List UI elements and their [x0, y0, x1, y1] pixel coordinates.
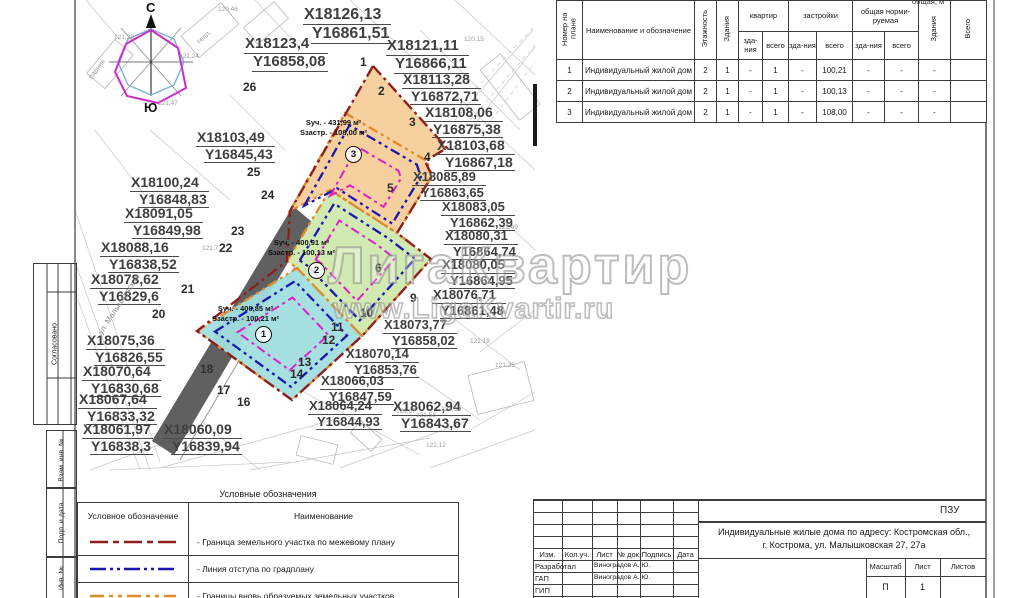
legend-col1-header: Условное обозначение [78, 503, 189, 529]
coordinate-label: X18091,05Y16849,98 [124, 206, 203, 239]
title-block-line [533, 584, 698, 585]
title-block-line [533, 512, 698, 513]
coordinate-label: X18103,49Y16845,43 [196, 130, 275, 163]
coordinate-label: X18088,16Y16838,52 [100, 240, 179, 273]
legend-name: - Границы вновь образуемых земельных уча… [189, 583, 458, 598]
sheet-header: Лист [905, 562, 940, 571]
legend-row: - Границы вновь образуемых земельных уча… [78, 582, 458, 598]
coordinate-label: X18075,36Y16826,55 [86, 333, 165, 366]
boundary-point-number: 3 [409, 115, 416, 129]
stamp-vzam-inv: Взам. инв. № [46, 430, 77, 489]
boundary-point-number: 22 [219, 241, 232, 255]
boundary-point-number: 18 [200, 362, 213, 376]
legend-name: - Линия отступа по градплану [189, 556, 458, 582]
boundary-point-number: 16 [237, 395, 250, 409]
title-block-person: Виноградов А. Ю. [594, 562, 673, 569]
summary-table-row: 1Индивидуальный жилой дом21-1-100,21--- [557, 60, 987, 81]
boundary-point-number: 9 [410, 291, 417, 305]
title-block-role: Разработал [535, 562, 592, 571]
legend-symbol [78, 556, 189, 582]
title-block-header-cell: № док. [617, 550, 640, 559]
summary-table: Номер на планеНаименование и обозначение… [556, 0, 987, 123]
boundary-point-number: 11 [331, 320, 344, 334]
elevation-mark: 121,7 [202, 245, 218, 252]
coordinate-label: X18080,05Y16864,95 [441, 258, 515, 289]
legend-row: - Граница земельного участка по межевому… [78, 529, 458, 555]
elevation-mark: 121,24 [179, 53, 199, 60]
boundary-point-number: 25 [247, 165, 260, 179]
title-block-header-cell: Дата [673, 550, 698, 559]
title-block-line [533, 536, 698, 537]
stamp-inv: Инв. № [46, 556, 77, 598]
boundary-point-number: 6 [375, 261, 382, 275]
boundary-point-number: 14 [290, 367, 303, 381]
boundary-point-number: 5 [387, 181, 394, 195]
elevation-mark: 120,46 [218, 6, 238, 13]
legend-title: Условные обозначения [77, 489, 459, 499]
coordinate-label: X18121,11Y16866,11 [386, 38, 469, 74]
boundary-point-number: 17 [217, 383, 230, 397]
coordinate-label: X18064,24Y16844,93 [308, 399, 382, 430]
coordinate-label: X18076,71Y16861,48 [432, 288, 506, 319]
title-block-line [698, 499, 699, 598]
boundary-point-number: 24 [261, 188, 274, 202]
coordinate-label: X18100,24Y16848,83 [130, 175, 209, 208]
elevation-mark: 120,15 [464, 36, 484, 43]
project-title-line2: г. Кострома, ул. Малышковская 27, 27а [706, 540, 982, 550]
title-block-line [533, 524, 698, 525]
legend-symbol [78, 529, 189, 555]
boundary-point-number: 21 [181, 282, 194, 296]
boundary-point-number: 10 [360, 306, 373, 320]
legend-symbol [78, 583, 189, 598]
scale-header: Масштаб [866, 562, 905, 571]
boundary-point-number: 1 [360, 55, 367, 69]
compass-south-label: Ю [144, 100, 157, 115]
title-block-header-cell: Подпись [640, 550, 673, 559]
sheets-header: Листов [940, 562, 986, 571]
legend-col2-header: Наименование [189, 503, 458, 529]
stamp-podp-data: Подп. и дата [46, 487, 77, 558]
coordinate-label: X18061,97Y16838,3 [82, 422, 153, 455]
elevation-mark: 122,49 [498, 224, 518, 231]
coordinate-label: X18103,68Y16867,18 [436, 138, 515, 171]
coordinate-label: X18113,28Y16872,71 [402, 72, 481, 105]
coordinate-label: X18123,4Y16858,08 [244, 36, 328, 72]
elevation-mark: 121,58 [416, 412, 436, 419]
legend-name: - Граница земельного участка по межевому… [189, 529, 458, 555]
legend-row: - Линия отступа по градплану [78, 555, 458, 582]
title-block-header-cell: Изм. [533, 550, 562, 559]
title-block-line [533, 499, 986, 501]
boundary-point-number: 12 [322, 333, 335, 347]
summary-table-row: 2Индивидуальный жилой дом21-1-100,13--- [557, 81, 987, 102]
sheet-value: 1 [905, 582, 940, 592]
parcel1-number: 1 [255, 326, 272, 343]
title-block-role: ГАП [535, 574, 592, 583]
doc-code: ПЗУ [940, 505, 980, 516]
boundary-point-number: 26 [243, 80, 256, 94]
title-block-line [698, 558, 986, 559]
elevation-mark: 121,67 [396, 408, 416, 415]
parcel1-label: Sуч. - 400,85 м²Sзастр. - 100,21 м² [212, 304, 279, 324]
compass-north-label: С [146, 0, 155, 15]
drawing-sheet: X18126,13Y16861,51X18123,4Y16858,08X1812… [0, 0, 1024, 598]
elevation-mark: 122,12 [426, 442, 446, 449]
table-cut-header: общая, м [912, 0, 944, 7]
title-block-line [698, 521, 986, 523]
parcel2-label: Sуч. - 400,91 м²Sзастр. - 100,13 м² [268, 238, 335, 258]
north-arrow [146, 14, 156, 28]
title-block-line [533, 548, 698, 549]
parcel3-label: Sуч. - 431,99 м²Sзастр. - 108,00 м² [300, 118, 367, 138]
elevation-mark: 121,28 [114, 34, 134, 41]
scale-value: П [866, 582, 905, 592]
elevation-mark: 121,47 [158, 100, 178, 107]
boundary-point-number: 2 [378, 84, 385, 98]
coordinate-label: X18073,77Y16858,02 [383, 318, 457, 349]
title-block-line [533, 572, 698, 573]
elevation-mark: 121,33 [441, 406, 461, 413]
coordinate-label: X18108,06Y16875,38 [424, 105, 503, 138]
title-block-role: ГИП [535, 586, 592, 595]
title-block-line [533, 596, 698, 597]
parcel3-number: 3 [345, 146, 362, 163]
title-block-header-cell: Лист [592, 550, 617, 559]
boundary-point-number: 4 [424, 150, 431, 164]
coordinate-label: X18060,09Y16839,94 [163, 422, 242, 455]
parcel2-number: 2 [308, 262, 325, 279]
stamp-soglasovano: Согласовано [33, 263, 77, 425]
title-block-line [866, 576, 986, 577]
coordinate-label: X18085,89Y16863,65 [412, 170, 486, 201]
legend: Условные обозначения Условное обозначени… [77, 489, 459, 598]
project-title-line1: Индивидуальные жилые дома по адресу: Кос… [706, 527, 982, 537]
boundary-point-number: 23 [231, 224, 244, 238]
title-block-header-cell: Кол.уч. [562, 550, 592, 559]
coordinate-label: X18080,31Y16864,74 [444, 229, 518, 260]
elevation-mark: 121,18 [470, 338, 490, 345]
title-block-line [533, 560, 698, 561]
summary-table-row: 3Индивидуальный жилой дом21-1-108,00--- [557, 102, 987, 123]
boundary-point-number: 20 [152, 307, 165, 321]
elevation-mark: 121,35 [495, 362, 515, 369]
title-block-person: Виноградов А. Ю. [594, 574, 673, 581]
